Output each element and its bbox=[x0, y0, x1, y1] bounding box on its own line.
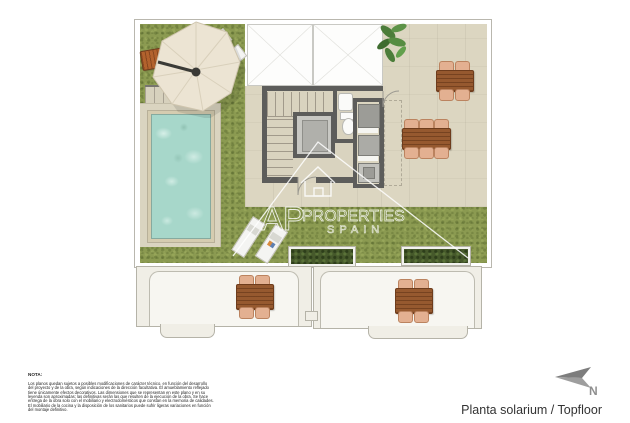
dining-chair bbox=[404, 147, 419, 159]
skylight-panel-right bbox=[313, 24, 383, 86]
hedge-planter bbox=[289, 247, 355, 266]
compass-label: N bbox=[589, 384, 598, 398]
dining-chair bbox=[398, 311, 413, 323]
potted-plant bbox=[376, 22, 412, 68]
terrace-step-notch bbox=[160, 324, 215, 338]
dining-chair bbox=[419, 147, 434, 159]
dining-chair bbox=[255, 307, 270, 319]
note-line: del montaje definitivo. bbox=[28, 408, 243, 412]
north-arrow-icon: N bbox=[552, 364, 610, 400]
dining-chair bbox=[455, 89, 470, 101]
floor-plan-page: AP PROPERTIES SPAIN NOTA: Los planos que… bbox=[0, 0, 630, 423]
note-heading: NOTA: bbox=[28, 372, 243, 377]
terrace-canopy-outline bbox=[149, 271, 299, 326]
dining-chair bbox=[439, 89, 454, 101]
parasol bbox=[148, 20, 246, 118]
hedge-planter bbox=[402, 247, 470, 265]
dining-chair bbox=[239, 307, 254, 319]
dining-chair bbox=[434, 147, 449, 159]
dining-chair bbox=[414, 311, 429, 323]
swimming-pool bbox=[151, 114, 211, 239]
terrace-step-notch bbox=[368, 326, 468, 339]
plan-title: Planta solarium / Topfloor bbox=[400, 403, 602, 417]
door-swing-arcs bbox=[262, 82, 412, 202]
note-block: NOTA: Los planos quedan sujetos a posibl… bbox=[28, 372, 243, 412]
towel bbox=[267, 240, 276, 248]
skylight-panel-left bbox=[247, 24, 313, 86]
terrace-divider bbox=[305, 311, 318, 321]
